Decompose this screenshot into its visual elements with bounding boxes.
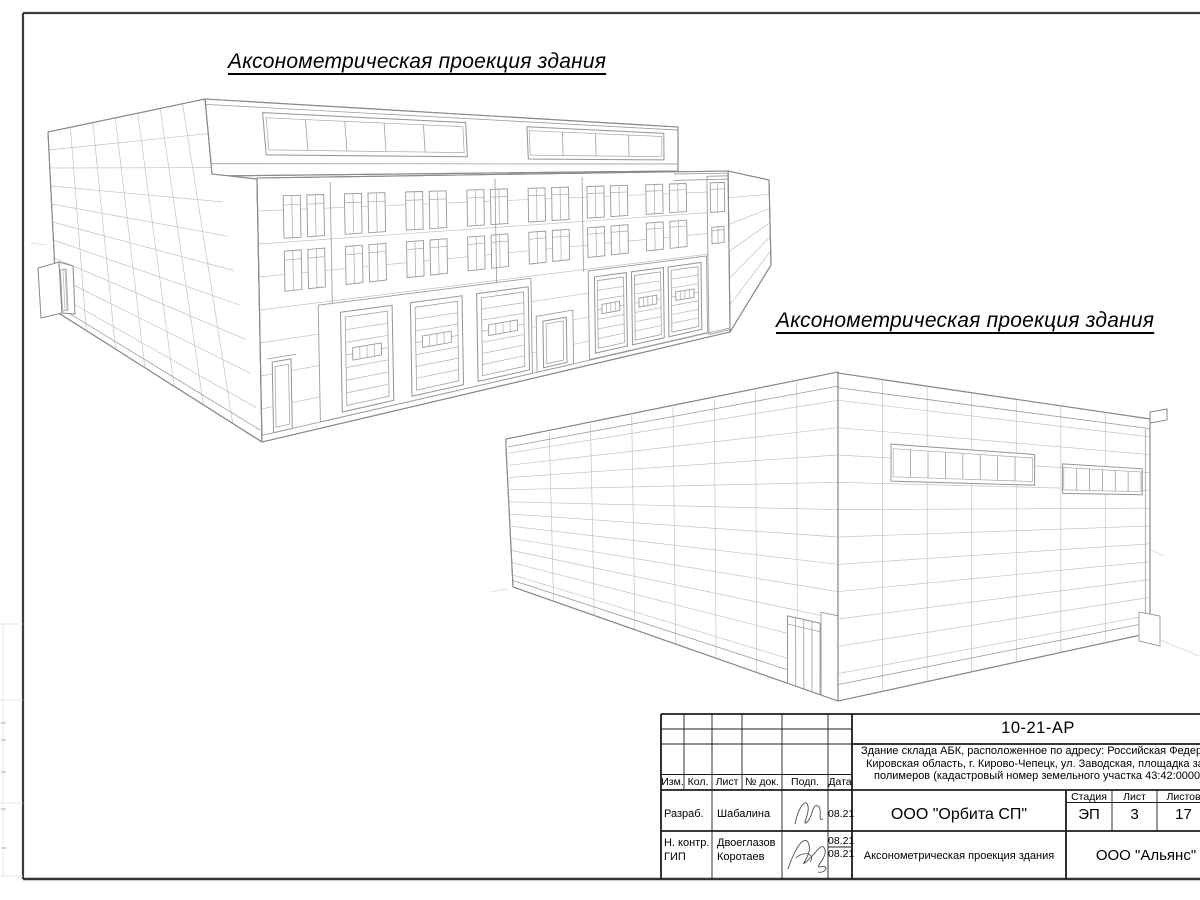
col-header-list: Лист: [712, 776, 742, 788]
sheets-label: Листов: [1157, 791, 1200, 803]
col-header-podp: Подп.: [782, 776, 828, 788]
contractor-org-name: ООО "Альянс": [1066, 847, 1200, 864]
sheet-number-value: 3: [1112, 806, 1157, 823]
sheets-total-value: 17: [1157, 806, 1200, 823]
col-header-kol: Кол.: [684, 776, 712, 788]
row-role-developer: Разраб.: [664, 808, 704, 821]
row-name-developer: Шабалина: [717, 808, 770, 821]
view-title-1: Аксонометрическая проекция здания: [228, 50, 576, 74]
col-header-data: Дата: [828, 776, 852, 788]
project-description-line-2: Кировская область, г. Кирово-Чепецк, ул.…: [866, 758, 1200, 771]
drawing-sheet: Аксонометрическая проекция здания Аксоно…: [0, 0, 1200, 900]
sheet-title: Аксонометрическая проекция здания: [852, 850, 1066, 863]
row-date-gip: 08.21: [828, 848, 852, 860]
row-name-gip: Коротаев: [717, 851, 765, 864]
col-header-izm: Изм.: [661, 776, 684, 788]
col-header-doc: № док.: [742, 776, 782, 788]
row-name-checker: Двоеглазов: [717, 837, 775, 850]
project-description-line-3: полимеров (кадастровый номер земельного …: [874, 770, 1200, 783]
project-description-line-1: Здание склада АБК, расположенное по адре…: [861, 745, 1200, 758]
design-org-name: ООО "Орбита СП": [852, 806, 1066, 824]
stage-label: Стадия: [1066, 791, 1112, 803]
row-role-checker: Н. контр.: [664, 837, 709, 850]
stage-value: ЭП: [1066, 806, 1112, 823]
sheet-label: Лист: [1112, 791, 1157, 803]
document-number: 10-21-АР: [852, 719, 1200, 738]
row-role-gip: ГИП: [664, 851, 686, 864]
view-title-2: Аксонометрическая проекция здания: [776, 309, 1128, 333]
row-date-checker: 08.21: [828, 835, 852, 847]
row-date-developer: 08.21: [828, 808, 852, 820]
